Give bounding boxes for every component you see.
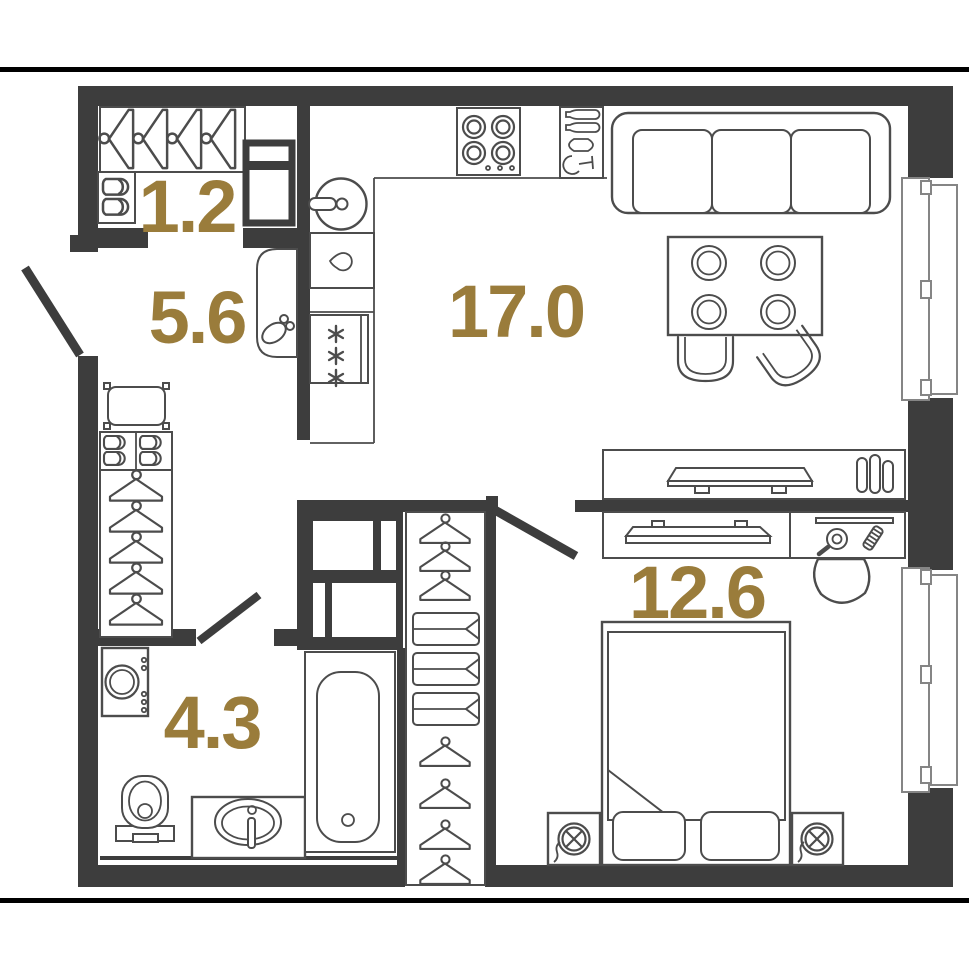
bottom-boundary-line bbox=[0, 898, 969, 903]
drawer-icon bbox=[413, 693, 479, 725]
tall-cabinet-icon bbox=[246, 143, 292, 223]
nightstand-icon bbox=[548, 813, 600, 865]
radiator-icon bbox=[857, 455, 893, 493]
dining-table-icon bbox=[668, 237, 822, 335]
floor-plan: 1.2 5.6 17.0 4.3 12.6 bbox=[0, 0, 969, 969]
hanger-rod-icon bbox=[100, 107, 245, 172]
pillow-icon bbox=[701, 812, 779, 860]
bed-icon bbox=[602, 622, 790, 865]
room-label-entry-closet: 1.2 bbox=[139, 165, 236, 248]
top-boundary-line bbox=[0, 67, 969, 72]
pillow-icon bbox=[613, 812, 685, 860]
entry-door-icon bbox=[25, 268, 80, 355]
shoe-shelf-icon bbox=[98, 172, 135, 223]
nightstand-icon bbox=[792, 813, 843, 865]
lamp-icon bbox=[802, 824, 833, 855]
sliding-door-icon bbox=[257, 249, 297, 357]
vanity-shelf-icon bbox=[816, 518, 893, 523]
kitchen-sink-icon bbox=[309, 179, 367, 230]
room-label-kitchen-living: 17.0 bbox=[448, 270, 584, 353]
bathtub-icon bbox=[305, 652, 395, 852]
shoe-cabinet-icon bbox=[100, 432, 172, 470]
sofa-icon bbox=[612, 113, 890, 213]
kitchen-partition-wall bbox=[297, 86, 310, 440]
sink-vanity-icon bbox=[192, 797, 305, 858]
room-label-bathroom: 4.3 bbox=[164, 681, 261, 764]
kitchen-living-room bbox=[309, 107, 905, 499]
tv-console-icon bbox=[603, 450, 905, 499]
window-icon bbox=[902, 568, 957, 792]
drawer-icon bbox=[413, 613, 479, 645]
bathroom-door-icon bbox=[199, 595, 259, 641]
ventilation-shaft-icon bbox=[297, 505, 403, 650]
chair-icon bbox=[814, 559, 869, 603]
refrigerator-icon bbox=[310, 315, 368, 386]
washing-machine-icon bbox=[102, 648, 148, 716]
bottle-rack-icon bbox=[560, 107, 603, 178]
room-label-bedroom: 12.6 bbox=[629, 551, 765, 634]
room-label-hallway: 5.6 bbox=[149, 276, 246, 359]
dishwasher-icon bbox=[310, 233, 374, 288]
pouf-icon bbox=[104, 383, 169, 429]
toilet-icon bbox=[116, 776, 174, 842]
wardrobe-hangers-icon bbox=[100, 470, 172, 637]
wardrobe-column-icon bbox=[406, 512, 485, 885]
window-icon bbox=[902, 178, 957, 400]
vanity-table-icon bbox=[790, 512, 905, 558]
bedroom-door-icon bbox=[493, 509, 576, 556]
drawer-icon bbox=[413, 653, 479, 685]
floor-plan-drawing: 1.2 5.6 17.0 4.3 12.6 bbox=[0, 0, 969, 969]
chair-icon bbox=[678, 337, 733, 381]
lamp-icon bbox=[559, 824, 590, 855]
stove-icon bbox=[457, 108, 520, 175]
counter-shelf-lines bbox=[310, 288, 374, 312]
